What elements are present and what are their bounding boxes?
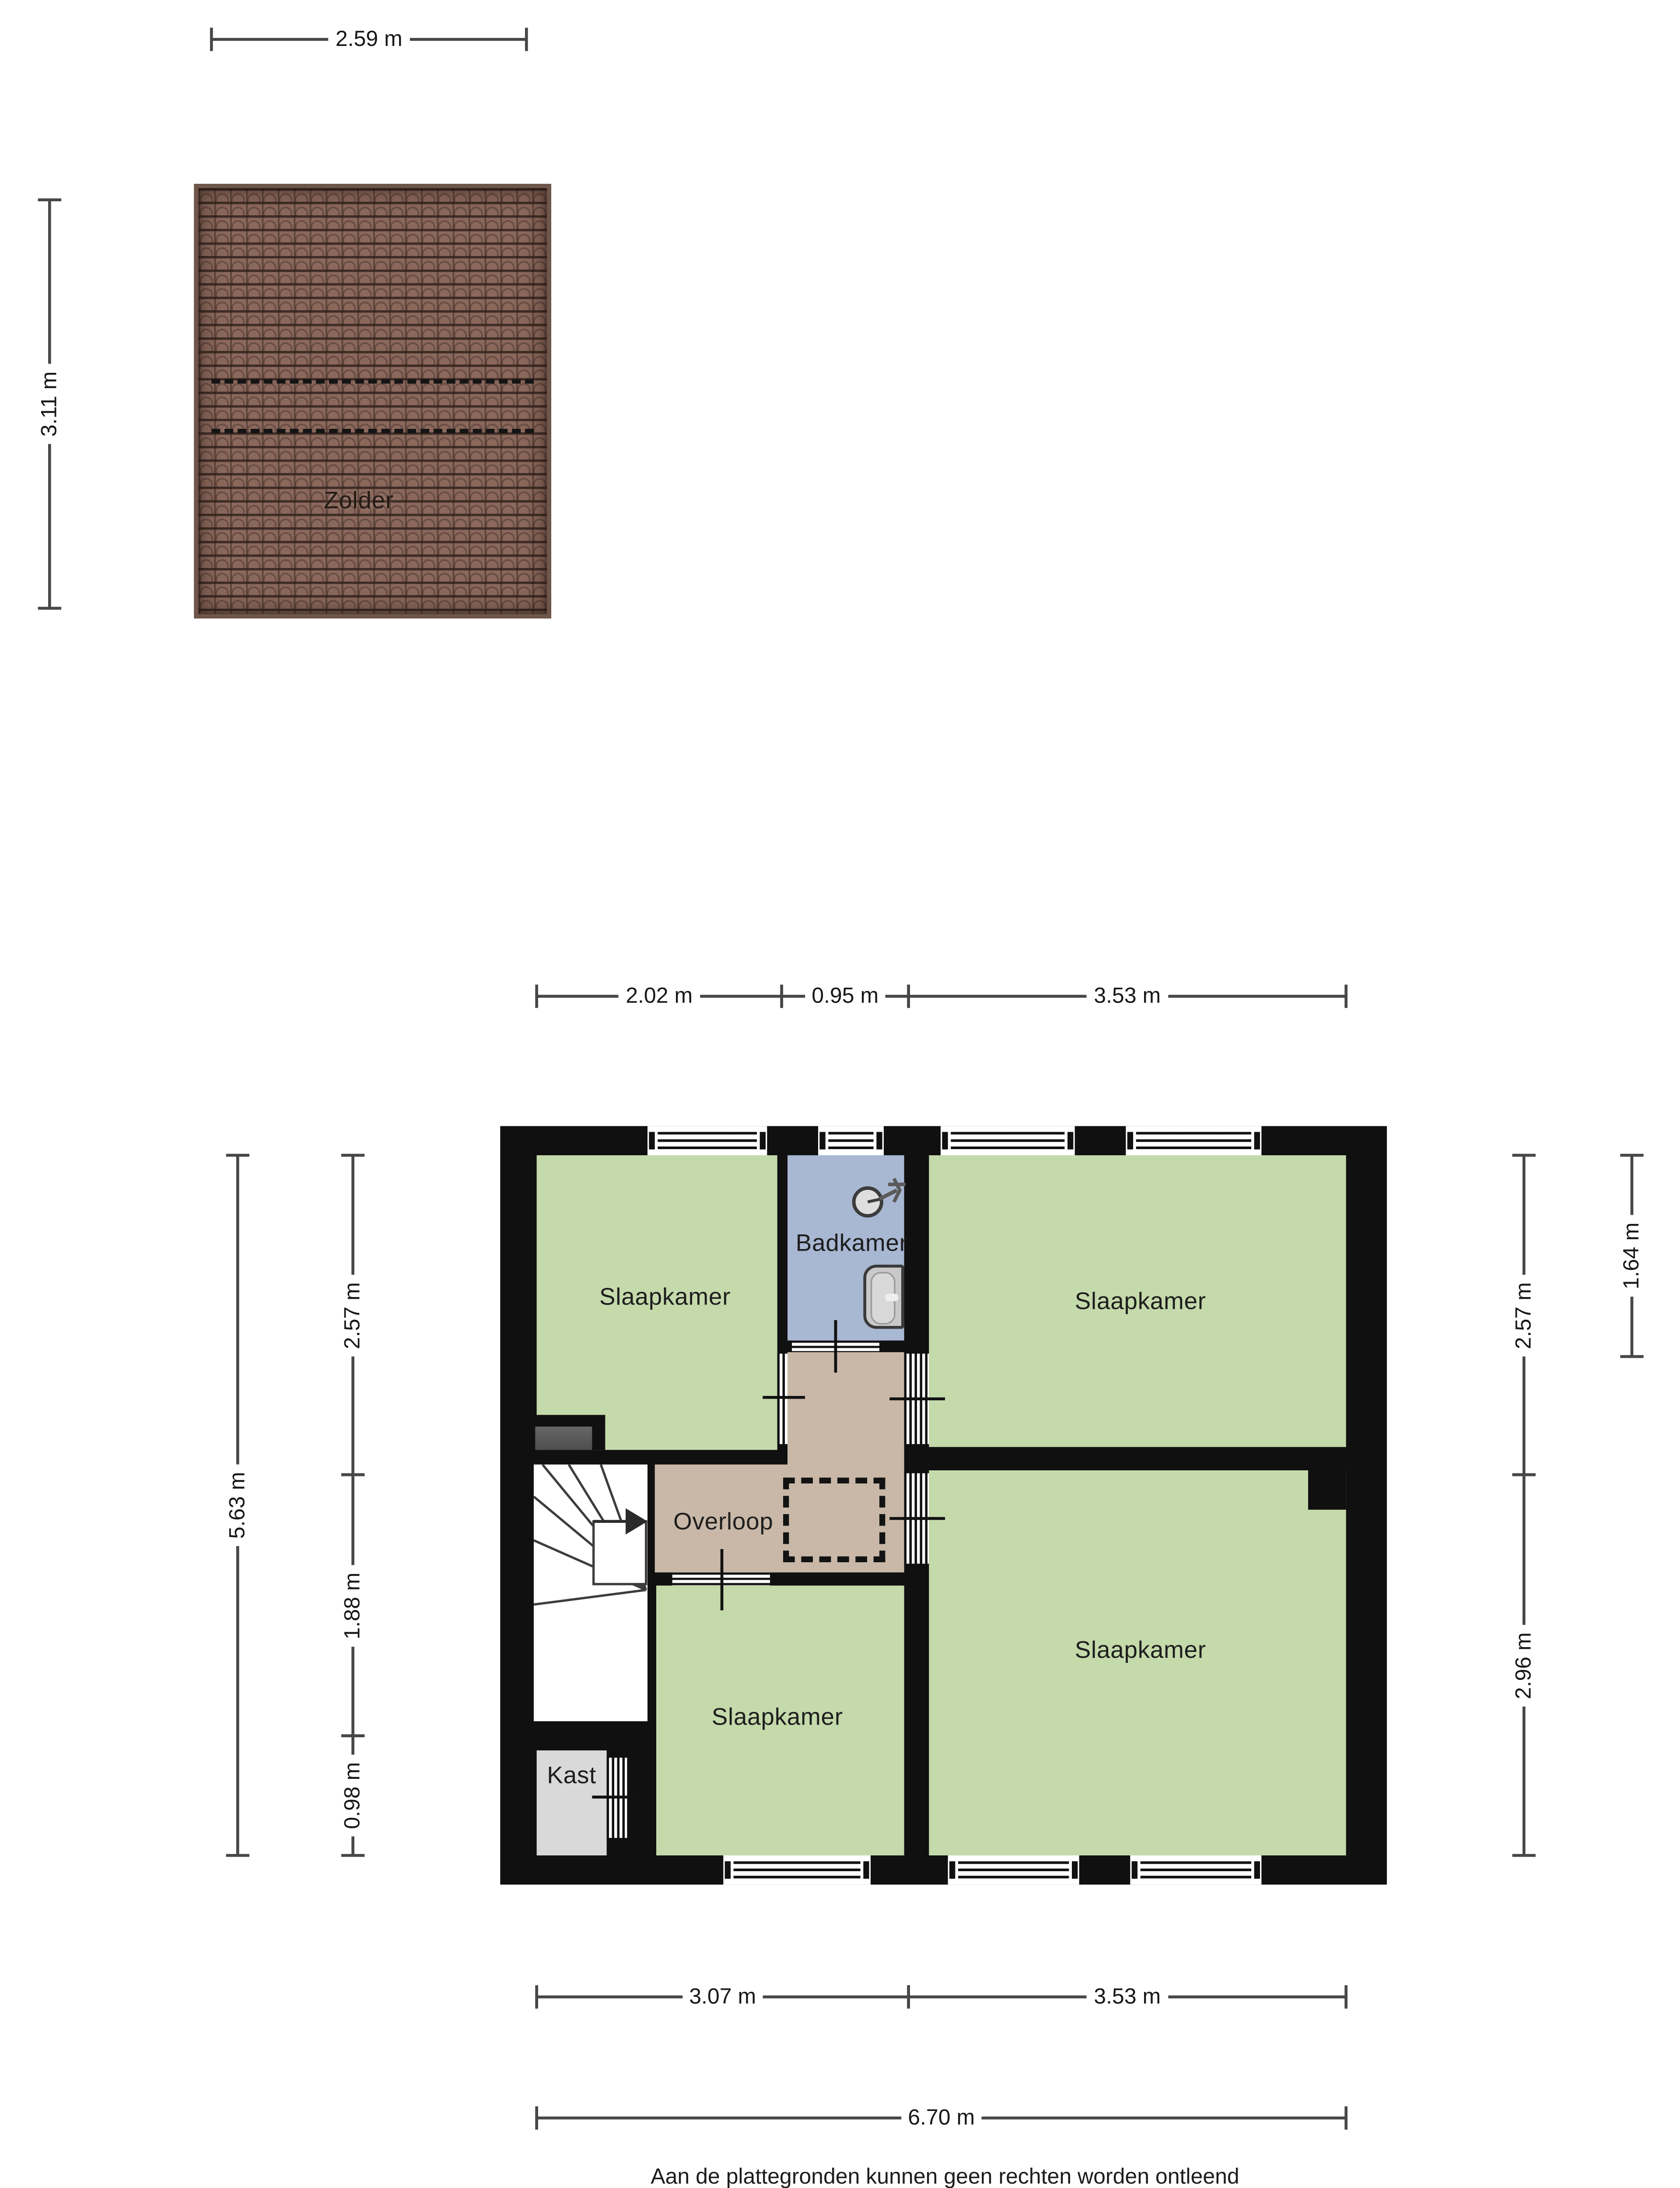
- window-top-4: [1126, 1126, 1261, 1155]
- dim-left-inner-label-3: 0.98 m: [340, 1755, 365, 1836]
- attic-hatch-dashed-outline: [783, 1478, 885, 1562]
- dim-left-inner-label-2: 1.88 m: [340, 1564, 365, 1646]
- window-glazing: [958, 1861, 1069, 1879]
- dim-right-inner-2: 2.96 m: [1522, 1475, 1526, 1855]
- window-glazing: [951, 1132, 1064, 1150]
- window-glazing: [828, 1132, 873, 1150]
- dim-top-segment-2: 0.95 m: [782, 995, 909, 998]
- window-bottom-2: [948, 1855, 1079, 1885]
- window-glazing: [734, 1861, 861, 1879]
- attic-dashed-line-lower: [211, 429, 534, 433]
- door-tick-tr: [889, 1397, 945, 1400]
- shower-icon: [846, 1173, 907, 1228]
- window-top-3: [941, 1126, 1075, 1155]
- dim-left-outer-label: 5.63 m: [225, 1465, 250, 1546]
- window-top-1: [647, 1126, 767, 1155]
- attic-roof-plan: [194, 184, 551, 618]
- footer-disclaimer: Aan de plattegronden kunnen geen rechten…: [651, 2165, 1239, 2188]
- attic-width-dimension-label: 2.59 m: [328, 27, 409, 52]
- floorplan-sheet: 2.59 m 3.11 m Zolder 2.02 m 0.95 m 3.53 …: [0, 0, 1680, 2188]
- door-tick-kast: [592, 1795, 641, 1799]
- dim-right-inner-label-1: 2.57 m: [1512, 1274, 1536, 1356]
- dim-left-inner-2: 1.88 m: [351, 1475, 354, 1736]
- attic-width-dimension-line: 2.59 m: [211, 38, 526, 41]
- dim-left-inner-3: 0.98 m: [351, 1736, 354, 1855]
- window-glazing: [1136, 1132, 1251, 1150]
- dim-left-inner-label-1: 2.57 m: [340, 1274, 365, 1356]
- room-label-slaapkamer-top-left: Slaapkamer: [599, 1284, 731, 1312]
- attic-depth-dimension-label: 3.11 m: [37, 364, 62, 444]
- dim-bottom-segment-2: 3.53 m: [909, 1995, 1346, 1999]
- attic-depth-dimension-line: 3.11 m: [48, 200, 51, 608]
- door-tick-tl: [763, 1396, 805, 1399]
- stairs-winder-drawing: [534, 1465, 647, 1722]
- dim-top-segment-3: 3.53 m: [909, 995, 1346, 998]
- room-label-slaapkamer-bottom-middle: Slaapkamer: [712, 1704, 843, 1732]
- chimney-recess-gray: [535, 1427, 592, 1450]
- first-floor-plan: Slaapkamer Badkamer Slaapkamer Slaapkame…: [500, 1126, 1387, 1884]
- door-tick-badkamer: [834, 1320, 837, 1373]
- sink-icon: [863, 1265, 904, 1329]
- door-tick-br: [889, 1517, 945, 1520]
- dim-left-inner-1: 2.57 m: [351, 1155, 354, 1475]
- dim-right-inner-1: 2.57 m: [1522, 1155, 1526, 1475]
- room-label-zolder: Zolder: [324, 488, 394, 515]
- room-label-kast: Kast: [547, 1763, 596, 1790]
- dim-top-label-3: 3.53 m: [1087, 984, 1168, 1009]
- dim-left-outer: 5.63 m: [236, 1155, 239, 1855]
- sink-tap: [885, 1294, 898, 1301]
- dim-total-width-label: 6.70 m: [901, 2106, 982, 2131]
- dim-right-inner-label-2: 2.96 m: [1512, 1624, 1536, 1706]
- dim-top-segment-1: 2.02 m: [537, 995, 782, 998]
- window-bottom-1: [723, 1855, 871, 1885]
- dim-top-label-1: 2.02 m: [619, 984, 700, 1009]
- room-label-overloop: Overloop: [673, 1509, 773, 1536]
- page: 2.59 m 3.11 m Zolder 2.02 m 0.95 m 3.53 …: [0, 0, 1680, 2188]
- window-glazing: [1141, 1861, 1251, 1879]
- window-bottom-3: [1130, 1855, 1261, 1885]
- room-label-slaapkamer-top-right: Slaapkamer: [1075, 1289, 1206, 1316]
- dim-right-outer: 1.64 m: [1631, 1155, 1634, 1357]
- dim-top-label-2: 0.95 m: [805, 984, 886, 1009]
- window-top-2-badkamer: [818, 1126, 884, 1155]
- wall-notch: [1308, 1470, 1346, 1510]
- dim-right-outer-label: 1.64 m: [1620, 1215, 1645, 1297]
- dim-bottom-label-1: 3.07 m: [682, 1985, 763, 2009]
- dim-bottom-label-2: 3.53 m: [1087, 1985, 1168, 2009]
- room-label-slaapkamer-bottom-right: Slaapkamer: [1075, 1637, 1206, 1665]
- dim-total-width: 6.70 m: [537, 2117, 1346, 2120]
- door-tick-bm: [721, 1549, 724, 1610]
- window-glazing: [658, 1132, 757, 1150]
- dim-bottom-segment-1: 3.07 m: [537, 1995, 909, 1999]
- attic-dashed-line-upper: [211, 379, 534, 384]
- room-label-badkamer: Badkamer: [796, 1231, 908, 1258]
